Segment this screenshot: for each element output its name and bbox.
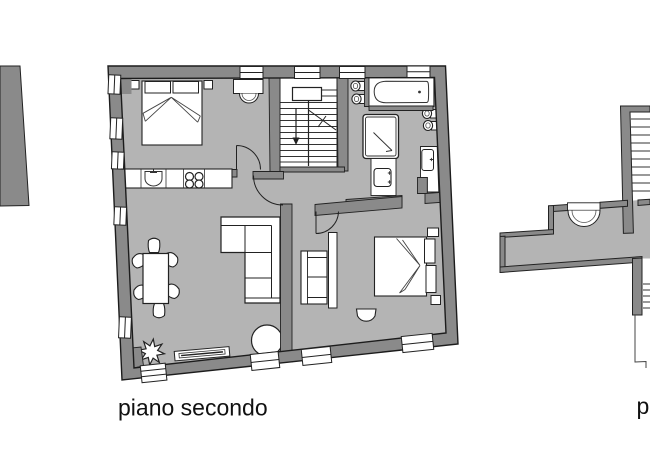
- svg-text:piano secondo: piano secondo: [118, 395, 268, 421]
- svg-text:p: p: [637, 393, 650, 419]
